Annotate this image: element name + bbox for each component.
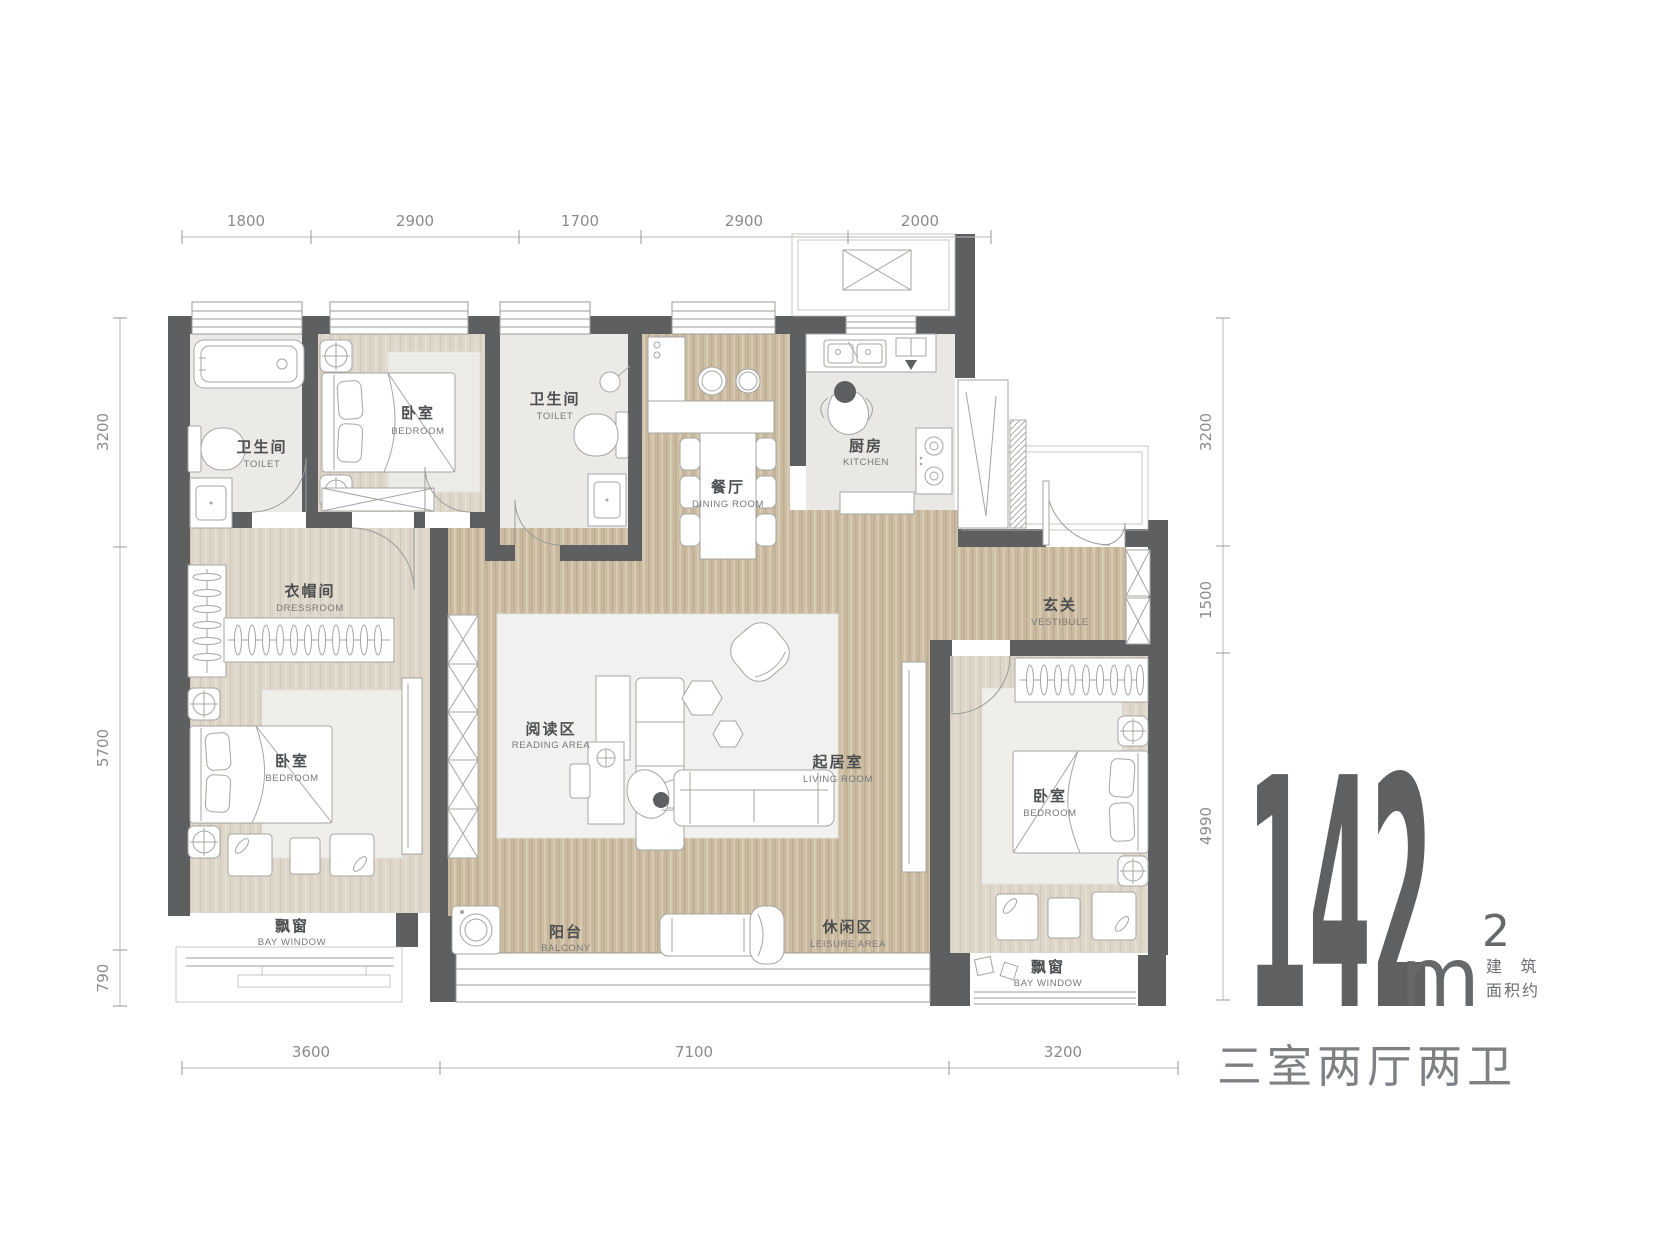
svg-text:飘窗: 飘窗 [1031, 958, 1065, 976]
wardrobe-icon [322, 488, 434, 511]
window-top-toilet1 [192, 302, 302, 334]
nightstand-icon [188, 826, 220, 858]
svg-text:起居室: 起居室 [811, 753, 863, 771]
bay-pillow-icon [975, 957, 1018, 980]
svg-text:BAY WINDOW: BAY WINDOW [258, 937, 326, 948]
svg-text:玄关: 玄关 [1043, 596, 1077, 614]
area-unit-sup: 2 [1482, 906, 1510, 957]
svg-text:BEDROOM: BEDROOM [391, 426, 444, 437]
svg-text:厨房: 厨房 [849, 437, 883, 455]
svg-text:TOILET: TOILET [537, 411, 574, 422]
svg-text:LIVING ROOM: LIVING ROOM [803, 774, 873, 785]
dimension-right: 3200 1500 4990 [1197, 318, 1230, 1000]
svg-text:2900: 2900 [725, 212, 763, 230]
dimension-top: 1800 2900 1700 2900 2000 [182, 212, 991, 244]
room-label-bay-left: 飘窗BAY WINDOW [258, 917, 326, 948]
svg-text:7100: 7100 [675, 1043, 713, 1061]
svg-text:TOILET: TOILET [244, 459, 281, 470]
svg-text:DINING ROOM: DINING ROOM [692, 499, 764, 510]
room-label-toilet1: 卫生间TOILET [236, 438, 287, 470]
room-label-dressroom: 衣帽间DRESSROOM [276, 582, 344, 614]
svg-text:阳台: 阳台 [549, 923, 583, 941]
area-note-line2: 面积约 [1486, 982, 1540, 1000]
window-top-dining [672, 302, 775, 334]
svg-text:KITCHEN: KITCHEN [843, 457, 889, 468]
room-label-toilet2: 卫生间TOILET [529, 390, 580, 422]
area-badge: 142 m 2 建 筑 面积约 三室两厅两卫 [1217, 712, 1543, 1092]
fridge-icon [958, 380, 1008, 528]
svg-text:3200: 3200 [1044, 1043, 1082, 1061]
dining-table-icon [700, 433, 756, 559]
window-top-toilet2 [500, 302, 590, 334]
svg-text:BAY WINDOW: BAY WINDOW [1014, 978, 1082, 989]
bed-icon [322, 373, 455, 472]
layout-text: 三室两厅两卫 [1217, 1041, 1517, 1092]
window-bay-left [176, 947, 402, 1002]
duct-hatch-icon [1010, 420, 1026, 528]
equipment-box-icon [843, 250, 911, 290]
lounge-chair-icon [660, 906, 784, 964]
toilet-icon [574, 412, 628, 458]
room-label-kitchen: 厨房KITCHEN [843, 437, 889, 468]
tv-console-icon [902, 662, 926, 872]
svg-text:衣帽间: 衣帽间 [284, 582, 335, 600]
sideboard-icon [648, 401, 774, 433]
svg-text:4990: 4990 [1197, 807, 1215, 845]
shoe-cabinet-icon [1126, 550, 1150, 644]
svg-text:BEDROOM: BEDROOM [1023, 808, 1076, 819]
room-label-bay-right: 飘窗BAY WINDOW [1014, 958, 1082, 989]
equipment-platform [792, 234, 955, 316]
svg-text:休闲区: 休闲区 [821, 918, 873, 936]
svg-text:卧室: 卧室 [1033, 787, 1067, 805]
svg-text:5700: 5700 [94, 729, 112, 767]
room-label-living: 起居室LIVING ROOM [803, 753, 873, 785]
svg-text:BALCONY: BALCONY [541, 943, 591, 954]
nightstand-icon [1118, 716, 1148, 746]
bookshelf-icon [448, 615, 478, 858]
bench-stool-icon [996, 892, 1136, 940]
svg-text:VESTIBULE: VESTIBULE [1031, 617, 1089, 628]
entry-door-arc [1043, 481, 1125, 545]
area-note-line1: 建 筑 [1486, 958, 1543, 976]
washing-machine-icon [452, 906, 500, 954]
dimension-left: 3200 5700 790 [94, 318, 127, 1006]
svg-text:READING AREA: READING AREA [512, 740, 591, 751]
svg-text:790: 790 [94, 964, 112, 993]
svg-text:3600: 3600 [292, 1043, 330, 1061]
svg-text:卧室: 卧室 [275, 752, 309, 770]
sink-icon [588, 474, 626, 526]
nightstand-icon [188, 688, 220, 720]
svg-text:飘窗: 飘窗 [275, 917, 309, 935]
svg-text:餐厅: 餐厅 [711, 478, 745, 496]
floor-plan-page: 卫生间TOILET 卧室BEDROOM 卫生间TOILET 餐厅DINING R… [0, 0, 1668, 1251]
window-top-bedroom [330, 302, 468, 334]
area-unit: m [1400, 931, 1480, 1026]
window-balcony [456, 953, 930, 1002]
svg-text:1700: 1700 [561, 212, 599, 230]
nightstand-icon [1118, 856, 1148, 886]
bathtub-icon [194, 340, 304, 388]
svg-text:卧室: 卧室 [401, 404, 435, 422]
window-kitchen-platform [846, 316, 916, 334]
cabinet-icon [648, 337, 685, 401]
svg-text:卫生间: 卫生间 [529, 390, 580, 408]
svg-text:3200: 3200 [1197, 413, 1215, 451]
bench-stool-icon [228, 834, 374, 876]
wardrobe-icon [1015, 658, 1148, 702]
svg-text:2900: 2900 [396, 212, 434, 230]
window-bay-right [974, 992, 1136, 1004]
svg-text:LEISURE AREA: LEISURE AREA [810, 939, 886, 950]
svg-text:1500: 1500 [1197, 581, 1215, 619]
svg-text:1800: 1800 [227, 212, 265, 230]
svg-text:2000: 2000 [901, 212, 939, 230]
svg-text:BEDROOM: BEDROOM [265, 773, 318, 784]
floor-plan-drawing: 卫生间TOILET 卧室BEDROOM 卫生间TOILET 餐厅DINING R… [0, 0, 1668, 1251]
svg-text:阅读区: 阅读区 [525, 720, 576, 738]
tv-console-icon [402, 678, 422, 854]
sink-icon [190, 478, 232, 528]
svg-text:卫生间: 卫生间 [236, 438, 287, 456]
dimension-bottom: 3600 7100 3200 [182, 1043, 1178, 1075]
svg-text:3200: 3200 [94, 413, 112, 451]
svg-text:DRESSROOM: DRESSROOM [276, 603, 344, 614]
nightstand-icon [320, 340, 352, 372]
stove-icon [916, 428, 952, 494]
area-value: 142 [1247, 712, 1433, 1082]
